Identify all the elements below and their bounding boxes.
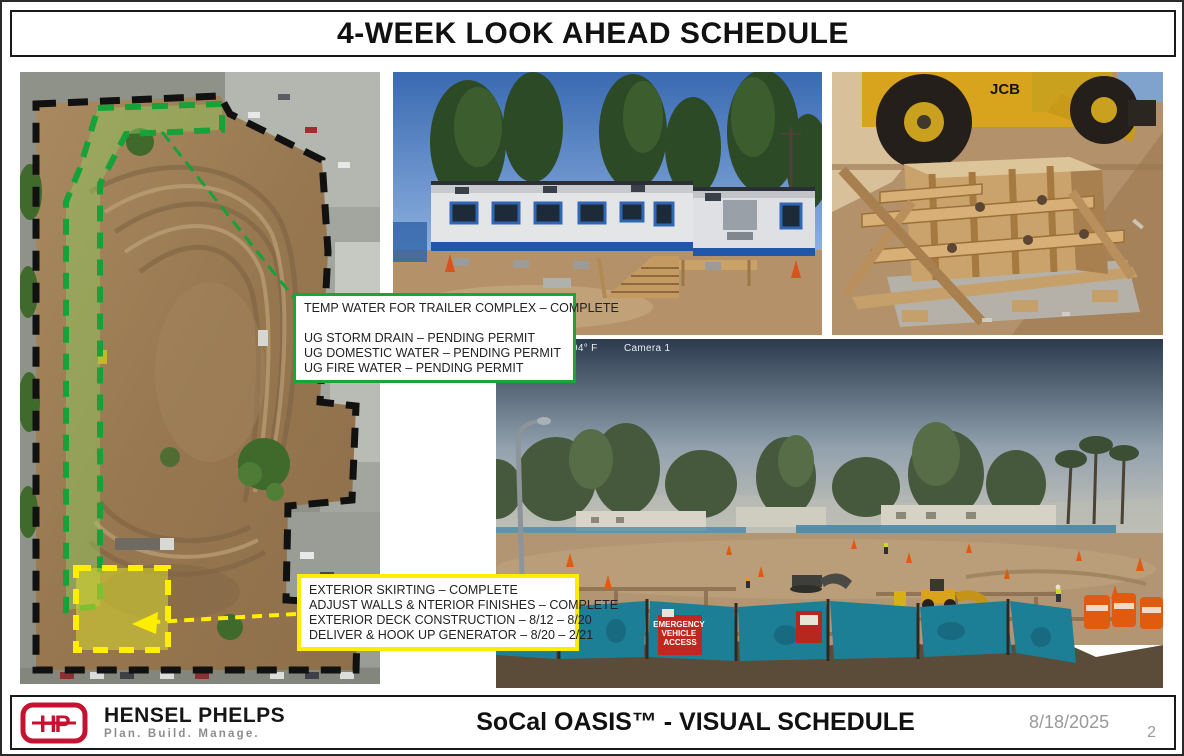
callout-yellow-trailer-tasks: EXTERIOR SKIRTING – COMPLETE ADJUST WALL… — [297, 574, 579, 651]
slide-date: 8/18/2025 — [1029, 712, 1109, 733]
office-trailer-right — [693, 187, 815, 256]
callout-line: UG DOMESTIC WATER – PENDING PERMIT — [304, 346, 565, 361]
yellow-bin — [894, 591, 906, 607]
site-webcam-photo: EMERGENCY VEHICLE ACCESS — [496, 339, 1163, 688]
page-title: 4-WEEK LOOK AHEAD SCHEDULE — [337, 17, 849, 51]
blue-fence — [393, 222, 427, 262]
callout-line: ADJUST WALLS & NTERIOR FINISHES – COMPLE… — [309, 598, 567, 613]
callout-line — [304, 316, 565, 331]
company-tagline: Plan. Build. Manage. — [104, 727, 285, 741]
slide: 4-WEEK LOOK AHEAD SCHEDULE — [0, 0, 1184, 756]
callout-line: EXTERIOR DECK CONSTRUCTION – 8/12 – 8/20 — [309, 613, 567, 628]
callout-line: UG STORM DRAIN – PENDING PERMIT — [304, 331, 565, 346]
callout-line: TEMP WATER FOR TRAILER COMPLEX – COMPLET… — [304, 301, 565, 316]
dirt-patch — [155, 282, 265, 462]
office-trailer-main — [431, 181, 693, 251]
company-name: HENSEL PHELPS — [104, 705, 285, 727]
fence-sign-emergency: EMERGENCY VEHICLE ACCESS — [653, 609, 707, 655]
footer-bar: HP HENSEL PHELPS Plan. Build. Manage. So… — [10, 695, 1176, 750]
callout-line: DELIVER & HOOK UP GENERATOR – 8/20 – 2/2… — [309, 628, 567, 643]
callout-line: UG FIRE WATER – PENDING PERMIT — [304, 361, 565, 376]
yellow-scope-area-fill — [76, 568, 168, 650]
callout-line: EXTERIOR SKIRTING – COMPLETE — [309, 583, 567, 598]
dump-truck — [115, 538, 174, 550]
project-title: SoCal OASIS™ - VISUAL SCHEDULE — [332, 708, 1029, 737]
hensel-phelps-logo-icon: HP — [18, 701, 94, 745]
webcam-camera-label: Camera 1 — [624, 343, 670, 354]
concrete-formwork-photo: JCB — [832, 72, 1163, 335]
page-number: 2 — [1147, 724, 1156, 748]
callout-green-utilities: TEMP WATER FOR TRAILER COMPLEX – COMPLET… — [293, 293, 576, 383]
title-bar: 4-WEEK LOOK AHEAD SCHEDULE — [10, 10, 1176, 57]
jcb-logo-text: JCB — [990, 81, 1020, 98]
brand-block: HP HENSEL PHELPS Plan. Build. Manage. — [12, 701, 332, 745]
